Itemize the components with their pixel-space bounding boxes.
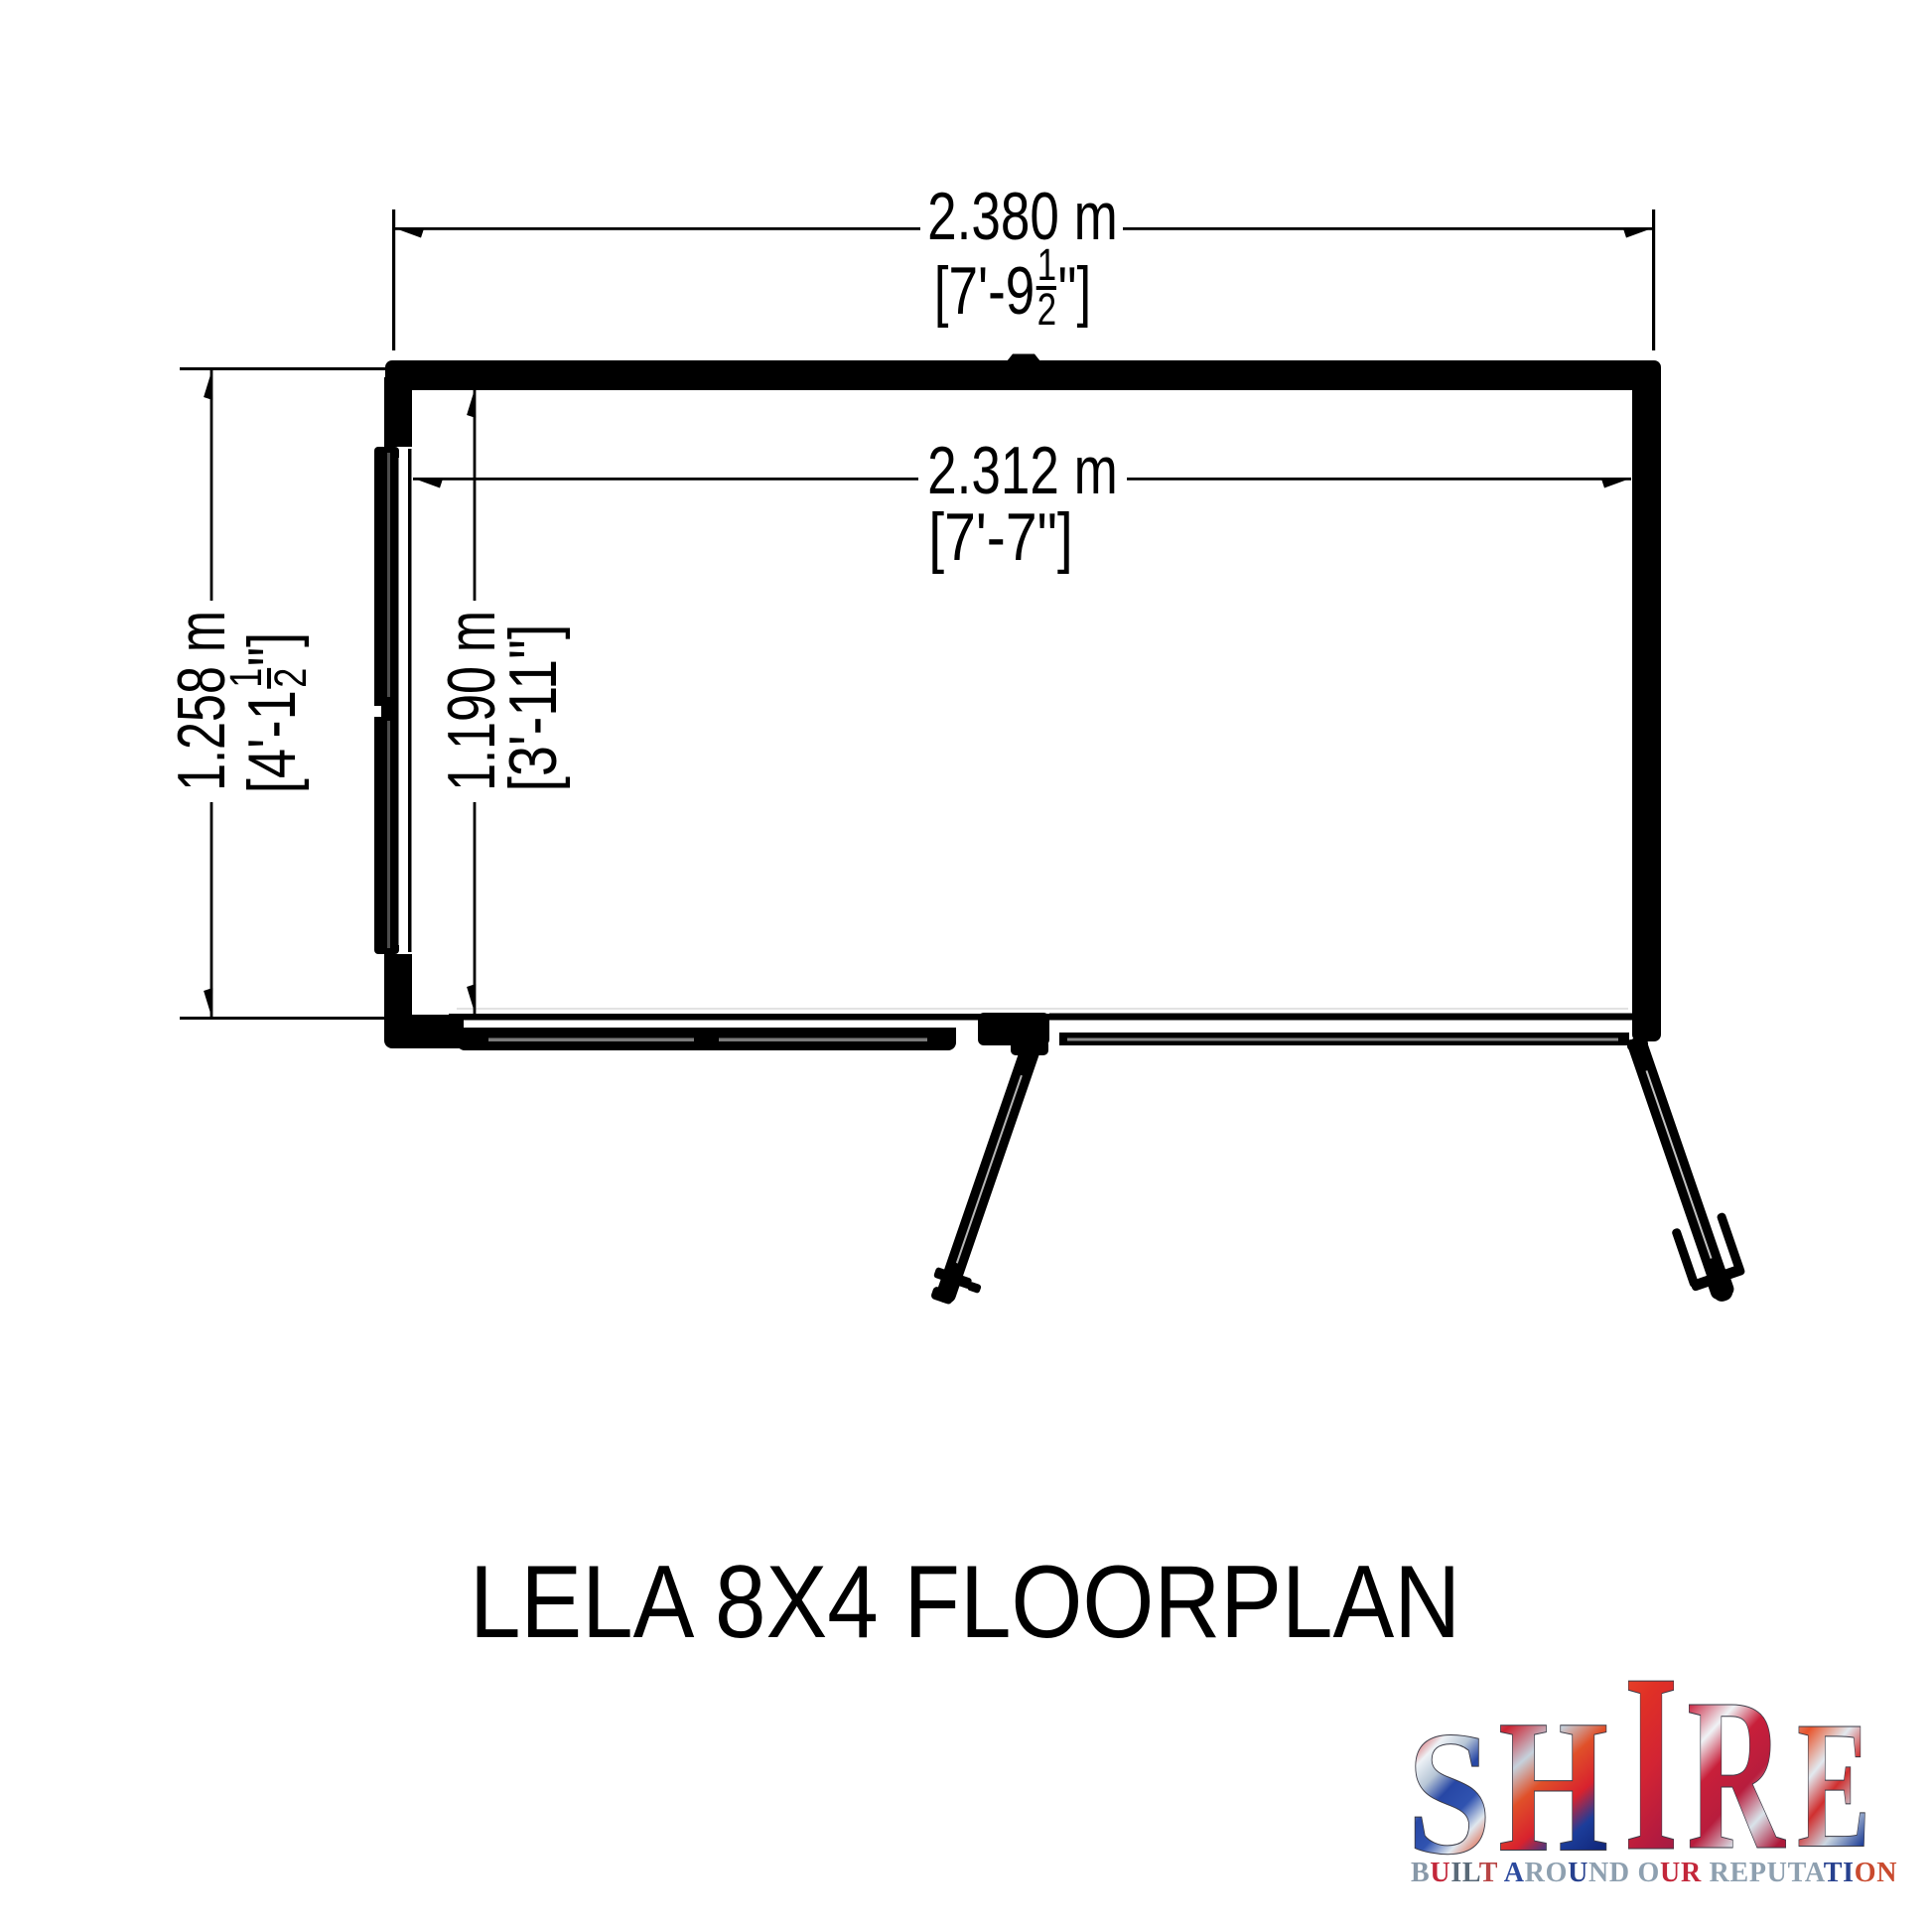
svg-text:E: E	[1797, 1684, 1870, 1885]
